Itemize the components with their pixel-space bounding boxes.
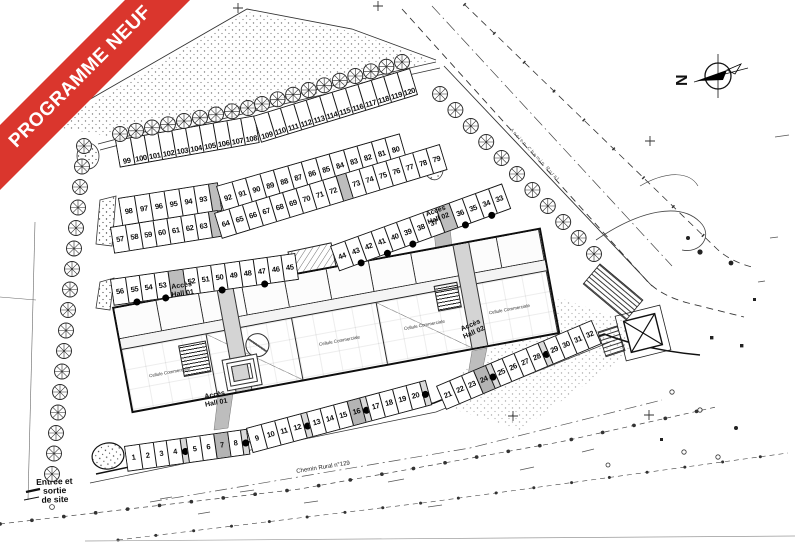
unit-number: 50 — [215, 273, 224, 282]
access-hall-01-row-label: AccèsHall 01 — [170, 281, 194, 299]
unit-number: 32 — [585, 330, 595, 340]
unit-number: 14 — [325, 414, 334, 423]
unit-number: 102 — [162, 148, 175, 157]
unit-number: 92 — [223, 193, 233, 202]
unit-cell-45: 45 — [281, 254, 299, 281]
unit-number: 31 — [573, 335, 583, 345]
unit-number: 41 — [377, 237, 387, 247]
unit-number: 6 — [206, 443, 211, 451]
unit-number: 30 — [561, 340, 571, 350]
unit-number: 98 — [124, 207, 133, 216]
unit-number: 63 — [199, 222, 208, 231]
unit-number: 120 — [403, 86, 416, 97]
unit-number: 51 — [201, 275, 210, 284]
units-row-bottom-c: 212223242526272829303132 — [436, 320, 601, 410]
unit-number: 4 — [173, 448, 178, 456]
unit-number: 111 — [287, 122, 300, 132]
tree-dot-icon — [260, 280, 268, 288]
unit-number: 85 — [321, 165, 331, 174]
unit-number: 17 — [371, 402, 380, 411]
unit-number: 22 — [455, 385, 465, 395]
unit-number: 61 — [171, 226, 180, 235]
unit-number: 54 — [144, 283, 153, 292]
units-row-r3-left: 565554535251504948474645 — [110, 253, 299, 306]
unit-number: 46 — [271, 265, 280, 274]
unit-number: 101 — [148, 151, 161, 160]
unit-number: 64 — [221, 219, 231, 228]
unit-number: 56 — [116, 287, 125, 296]
unit-number: 73 — [351, 179, 361, 188]
unit-number: 8 — [233, 439, 238, 447]
unit-number: 106 — [217, 139, 230, 148]
site-entrance-label: Entrée etsortiede site — [36, 477, 73, 506]
unit-number: 11 — [280, 427, 289, 436]
unit-number: 40 — [390, 232, 400, 242]
unit-number: 9 — [254, 434, 260, 442]
units-row-top-a: 99100101102103104105106107108 — [115, 115, 260, 167]
unit-number: 36 — [455, 208, 465, 218]
unit-number: 62 — [185, 224, 194, 233]
unit-number: 58 — [130, 233, 139, 242]
unit-rows: 9910010110210310410510610710810911011111… — [0, 0, 800, 543]
units-row-bottom-b: 91011121314151617181920 — [246, 380, 432, 453]
unit-number: 72 — [328, 186, 338, 195]
unit-number: 5 — [192, 445, 197, 453]
unit-number: 105 — [204, 141, 217, 150]
unit-number: 84 — [335, 161, 345, 170]
unit-number: 89 — [265, 181, 275, 190]
unit-number: 109 — [260, 130, 273, 141]
unit-number: 44 — [337, 251, 347, 261]
unit-number: 2 — [145, 452, 150, 460]
unit-number: 23 — [467, 380, 477, 390]
tree-dot-icon — [161, 294, 169, 302]
unit-number: 15 — [339, 411, 348, 420]
unit-number: 53 — [158, 281, 167, 290]
unit-number: 93 — [199, 195, 208, 204]
tree-dot-icon — [487, 211, 496, 220]
tree-dot-icon — [218, 286, 226, 294]
unit-number: 99 — [122, 156, 131, 165]
unit-number: 69 — [288, 198, 298, 207]
unit-number: 26 — [508, 362, 518, 372]
unit-number: 77 — [405, 163, 415, 172]
unit-number: 42 — [364, 241, 374, 251]
unit-number: 104 — [190, 144, 203, 153]
unit-number: 24 — [479, 375, 489, 385]
unit-number: 94 — [184, 197, 193, 206]
unit-number: 13 — [312, 418, 321, 427]
tree-dot-icon — [133, 298, 141, 306]
unit-number: 86 — [307, 169, 317, 178]
unit-number: 96 — [154, 202, 163, 211]
unit-number: 29 — [549, 345, 559, 355]
unit-number: 34 — [481, 199, 491, 209]
unit-number: 100 — [135, 153, 148, 162]
unit-number: 47 — [257, 267, 266, 276]
unit-number: 107 — [231, 136, 244, 145]
tree-dot-icon — [383, 249, 392, 258]
unit-number: 27 — [520, 357, 530, 367]
site-plan: N 99100101102103104105106107108109110111… — [0, 0, 800, 543]
unit-number: 25 — [496, 367, 506, 377]
unit-number: 7 — [220, 441, 225, 449]
unit-number: 70 — [302, 194, 312, 203]
unit-number: 39 — [403, 227, 413, 237]
unit-number: 90 — [252, 185, 262, 194]
unit-number: 87 — [293, 173, 303, 182]
unit-number: 19 — [398, 395, 407, 404]
unit-number: 28 — [532, 352, 542, 362]
unit-number: 88 — [279, 177, 289, 186]
unit-number: 59 — [144, 230, 153, 239]
unit-number: 79 — [432, 154, 442, 163]
unit-number: 18 — [384, 399, 393, 408]
unit-number: 48 — [243, 269, 252, 278]
unit-number: 83 — [349, 157, 359, 166]
unit-number: 57 — [116, 235, 125, 244]
units-row-top-b: 109110111112113114115116117118119120 — [253, 68, 418, 143]
unit-number: 45 — [285, 263, 294, 272]
tree-dot-icon — [356, 258, 365, 267]
unit-number: 12 — [293, 423, 302, 432]
unit-number: 67 — [261, 206, 271, 215]
unit-number: 3 — [159, 450, 164, 458]
unit-number: 97 — [140, 204, 149, 213]
tree-dot-icon — [461, 220, 470, 229]
unit-number: 10 — [266, 430, 275, 439]
unit-number: 55 — [130, 285, 139, 294]
unit-number: 82 — [363, 153, 373, 162]
unit-number: 49 — [229, 271, 238, 280]
unit-number: 78 — [418, 158, 428, 167]
unit-number: 81 — [377, 149, 387, 158]
unit-number: 68 — [275, 202, 285, 211]
unit-number: 20 — [411, 391, 420, 400]
tree-dot-icon — [421, 390, 430, 399]
unit-number: 74 — [365, 175, 375, 184]
unit-number: 108 — [245, 134, 258, 143]
units-row-bottom-a: 12345678 — [124, 429, 251, 472]
unit-number: 33 — [494, 194, 504, 204]
unit-number: 91 — [238, 189, 248, 198]
unit-number: 38 — [416, 222, 426, 232]
unit-number: 60 — [158, 228, 167, 237]
unit-number: 80 — [391, 145, 401, 154]
unit-number: 43 — [351, 246, 361, 256]
unit-number: 76 — [391, 167, 401, 176]
unit-number: 35 — [468, 203, 478, 213]
unit-number: 71 — [315, 190, 325, 199]
unit-number: 21 — [443, 390, 453, 400]
unit-number: 75 — [378, 171, 388, 180]
unit-number: 95 — [169, 200, 178, 209]
unit-number: 1 — [131, 454, 136, 462]
unit-number: 65 — [235, 215, 245, 224]
unit-number: 66 — [248, 211, 258, 220]
unit-number: 16 — [352, 407, 361, 416]
unit-number: 103 — [176, 146, 189, 155]
tree-dot-icon — [409, 239, 418, 248]
